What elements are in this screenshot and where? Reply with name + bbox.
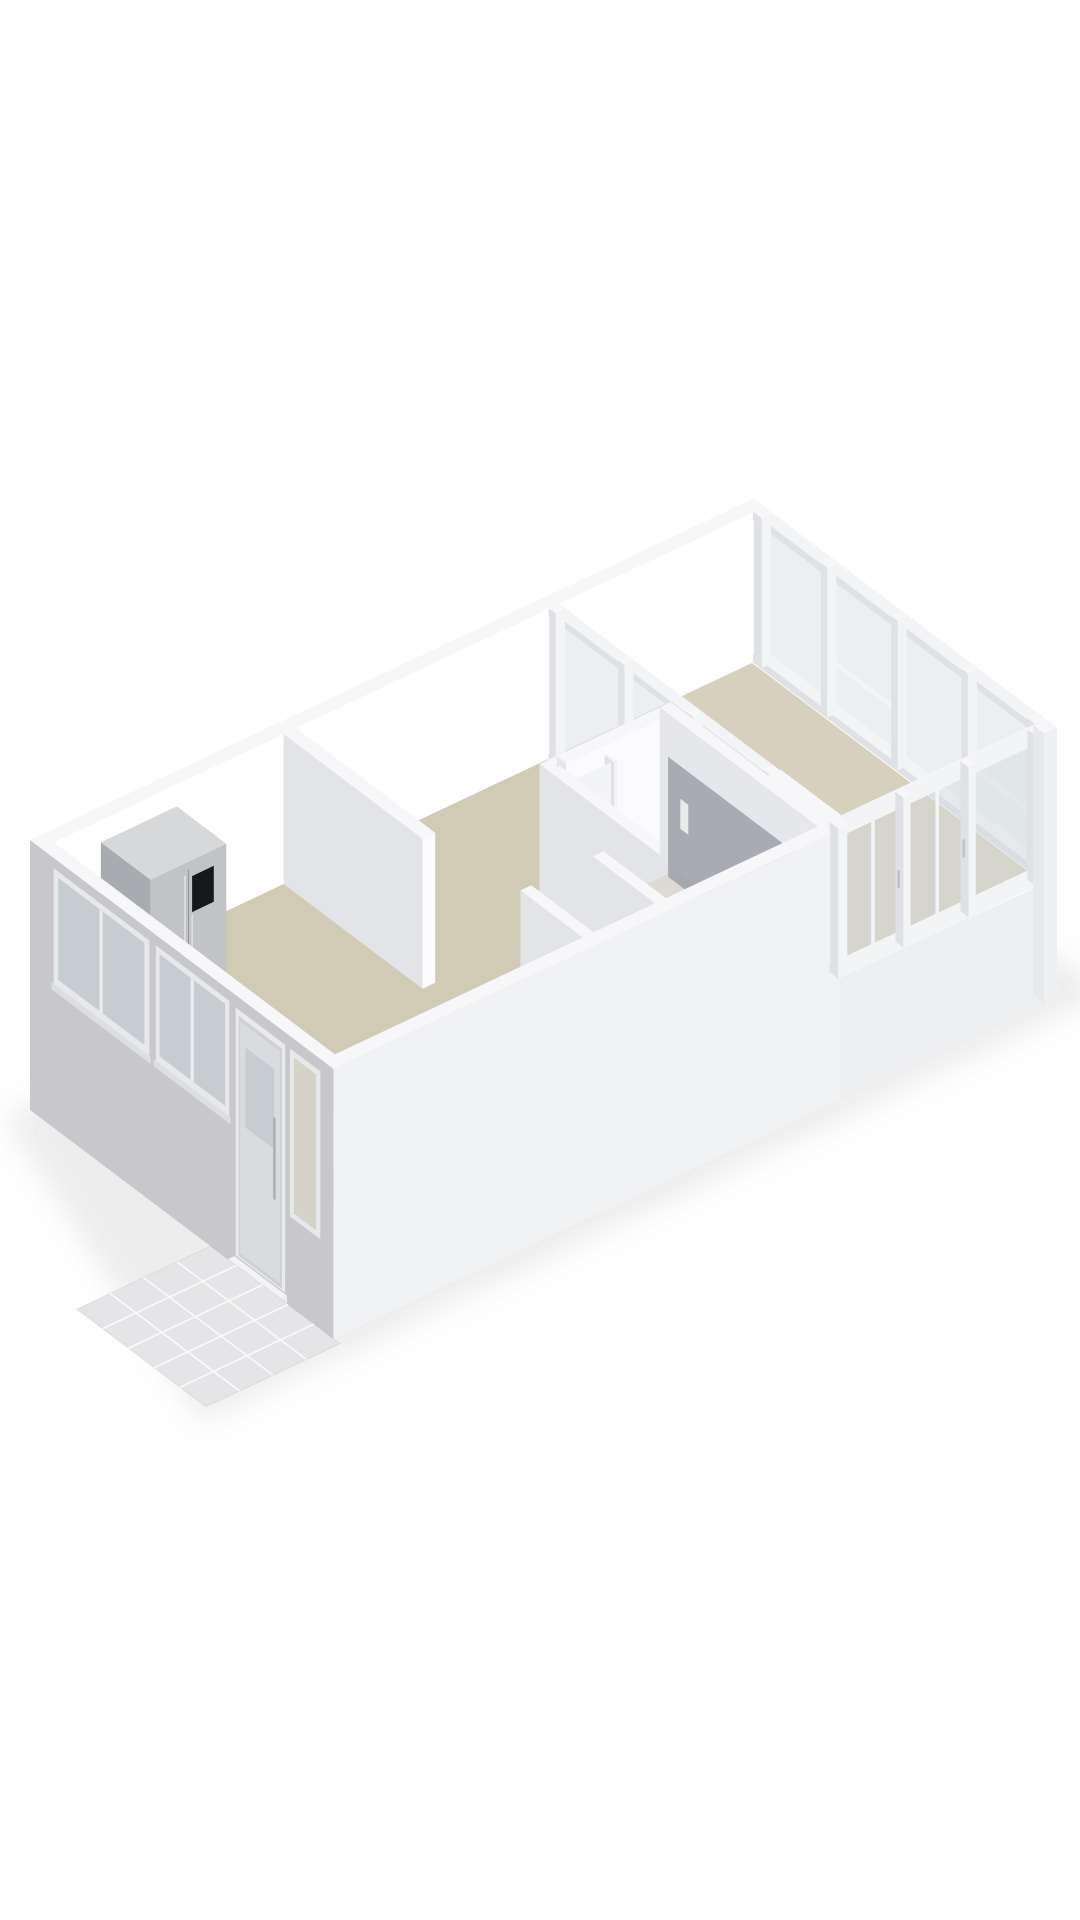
corner-post-east (1033, 719, 1057, 1003)
balcony-window-casement-bar-1 (871, 816, 875, 952)
balcony-window-handle-2 (962, 839, 965, 858)
kitchen-window-1-mullion (100, 909, 103, 1013)
floorplan-3d-canvas[interactable] (0, 0, 1080, 1920)
balcony-window-handle-1 (897, 870, 900, 889)
kitchen-window-2-mullion (191, 978, 194, 1083)
floorplan-3d-render (0, 0, 1080, 1920)
shower-glass-handle (680, 799, 688, 835)
entry-sidelight-glass (294, 1058, 316, 1231)
balcony-window-casement-bar-2 (935, 786, 939, 922)
apartment-model (3, 499, 1080, 1423)
front-door-handle-bar (273, 1117, 275, 1201)
